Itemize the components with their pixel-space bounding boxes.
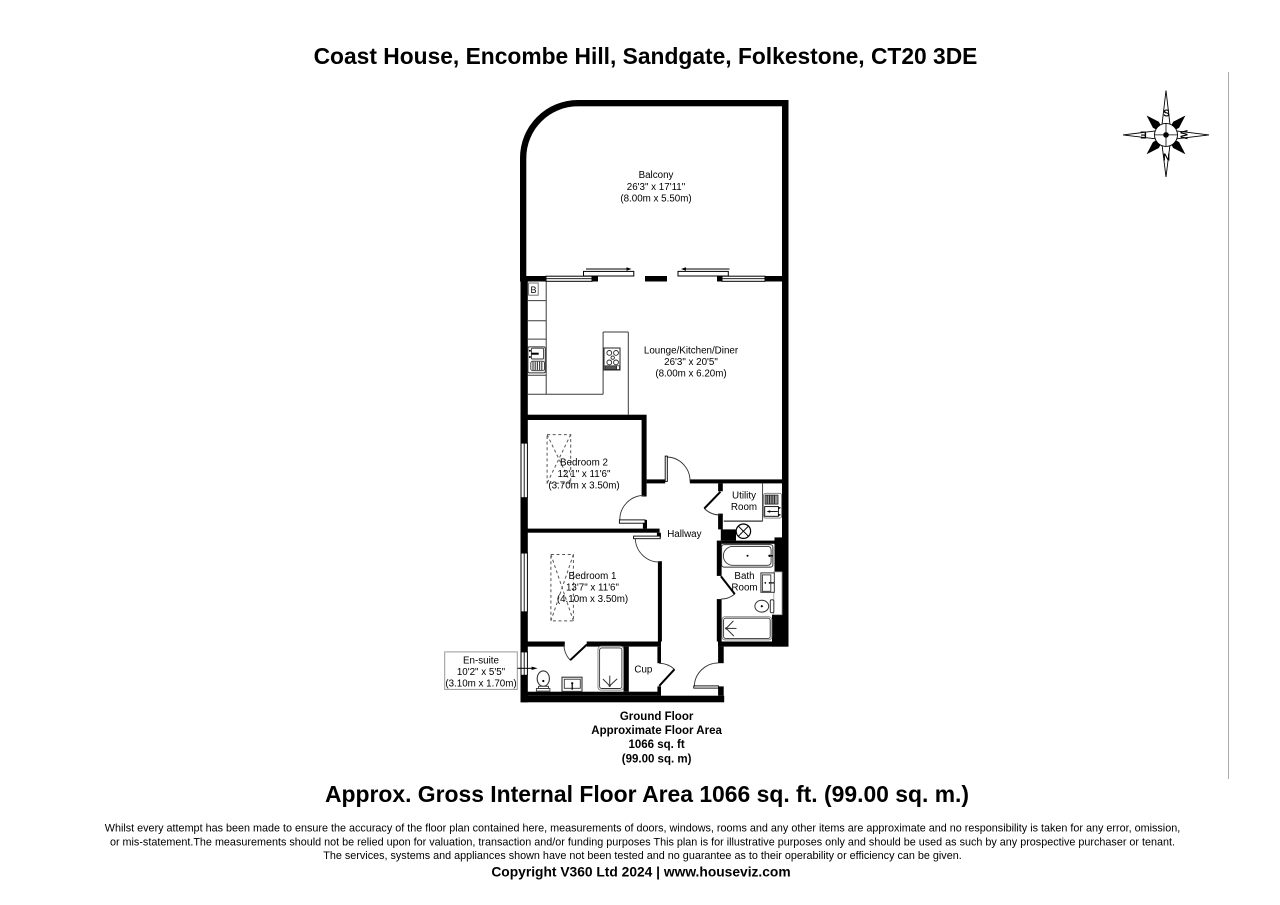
svg-text:S: S bbox=[1163, 109, 1170, 120]
svg-text:W: W bbox=[1178, 130, 1189, 140]
svg-text:Balcony: Balcony bbox=[639, 170, 674, 181]
svg-text:(3.10m x 1.70m): (3.10m x 1.70m) bbox=[445, 679, 516, 690]
svg-text:12'1" x 11'6": 12'1" x 11'6" bbox=[557, 469, 611, 480]
svg-text:Copyright V360 Ltd 2024 | www.: Copyright V360 Ltd 2024 | www.houseviz.c… bbox=[491, 865, 790, 880]
svg-text:Room: Room bbox=[731, 502, 757, 513]
svg-text:(4.10m x 3.50m): (4.10m x 3.50m) bbox=[557, 594, 628, 605]
svg-text:En-suite: En-suite bbox=[463, 656, 499, 667]
svg-text:Approx. Gross Internal Floor A: Approx. Gross Internal Floor Area 1066 s… bbox=[325, 781, 969, 807]
svg-text:Approximate Floor Area: Approximate Floor Area bbox=[591, 725, 722, 737]
svg-text:1066 sq. ft: 1066 sq. ft bbox=[628, 739, 684, 751]
svg-text:Utility: Utility bbox=[732, 491, 756, 502]
svg-text:E: E bbox=[1140, 129, 1147, 140]
svg-text:The services, systems and appl: The services, systems and appliances sho… bbox=[323, 850, 961, 862]
svg-text:(8.00m x 5.50m): (8.00m x 5.50m) bbox=[620, 193, 691, 204]
svg-text:13'7" x 11'6": 13'7" x 11'6" bbox=[566, 583, 620, 594]
svg-text:Ground Floor: Ground Floor bbox=[620, 711, 694, 723]
svg-text:(8.00m x 6.20m): (8.00m x 6.20m) bbox=[655, 369, 726, 380]
svg-text:Whilst every attempt has been: Whilst every attempt has been made to en… bbox=[105, 823, 1180, 835]
svg-text:Bedroom 1: Bedroom 1 bbox=[569, 571, 617, 582]
svg-text:Bath: Bath bbox=[734, 571, 754, 582]
svg-text:B: B bbox=[530, 285, 536, 295]
svg-text:Lounge/Kitchen/Diner: Lounge/Kitchen/Diner bbox=[644, 346, 739, 357]
svg-text:Cup: Cup bbox=[634, 665, 653, 676]
svg-text:10'2" x 5'5": 10'2" x 5'5" bbox=[457, 667, 506, 678]
svg-text:(99.00 sq. m): (99.00 sq. m) bbox=[622, 753, 692, 765]
svg-text:Bedroom 2: Bedroom 2 bbox=[560, 458, 608, 469]
svg-text:Coast House, Encombe Hill, San: Coast House, Encombe Hill, Sandgate, Fol… bbox=[314, 43, 978, 69]
svg-text:Hallway: Hallway bbox=[667, 529, 701, 540]
svg-text:26'3" x 20'5": 26'3" x 20'5" bbox=[664, 357, 718, 368]
svg-text:or mis-statement.The measureme: or mis-statement.The measurements should… bbox=[110, 836, 1175, 848]
svg-text:N: N bbox=[1163, 153, 1170, 164]
svg-text:26'3" x 17'11": 26'3" x 17'11" bbox=[627, 182, 686, 193]
svg-text:Room: Room bbox=[731, 583, 757, 594]
svg-text:(3.70m x 3.50m): (3.70m x 3.50m) bbox=[548, 481, 619, 492]
